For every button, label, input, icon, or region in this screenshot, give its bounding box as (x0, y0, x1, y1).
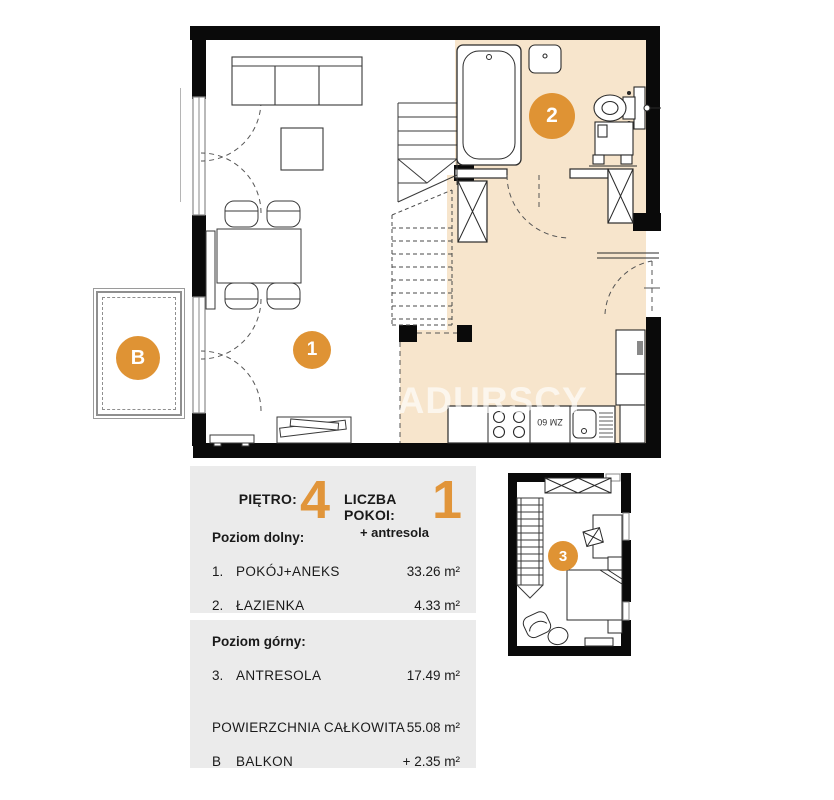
lower-level-panel: PIĘTRO: 4 LICZBA POKOI: + antresola 1 Po… (190, 466, 476, 613)
balcony-no: B (212, 754, 236, 769)
floor-indicator: PIĘTRO: 4 (208, 476, 330, 524)
mezzanine-railing-beam (545, 478, 611, 493)
room-row-2: 2. ŁAZIENKA 4.33 m² (190, 598, 476, 613)
total-area: 55.08 m² (407, 720, 460, 735)
room-number: 3. (212, 668, 236, 683)
marker-balcony: B (116, 336, 160, 380)
floor-plan-page: ZM 60 (0, 0, 834, 800)
room-name: ANTRESOLA (236, 668, 407, 683)
floor-label: PIĘTRO: (239, 491, 297, 507)
upper-level-panel: Poziom górny: 3. ANTRESOLA 17.49 m² POWI… (190, 620, 476, 768)
balcony-area: + 2.35 m² (403, 754, 460, 769)
balcony-row: B BALKON + 2.35 m² (190, 754, 476, 769)
room-area: 33.26 m² (407, 564, 460, 579)
rooms-indicator: LICZBA POKOI: + antresola 1 (344, 476, 462, 524)
bench-sill (585, 638, 613, 646)
room-row-3: 3. ANTRESOLA 17.49 m² (190, 668, 476, 683)
staircase-upper-dashed (392, 190, 452, 325)
room-row-1: 1. POKÓJ+ANEKS 33.26 m² (190, 564, 476, 579)
washbasin (529, 45, 561, 73)
rooms-label: LICZBA POKOI: (344, 491, 429, 523)
lower-section-title: Poziom dolny: (190, 530, 476, 545)
room-number: 1. (212, 564, 236, 579)
marker-room-2: 2 (529, 93, 575, 139)
tv-cabinet (277, 417, 351, 443)
coffee-table (281, 128, 323, 170)
marker-room-1: 1 (293, 331, 331, 369)
room-name: POKÓJ+ANEKS (236, 564, 407, 579)
rooms-value: 1 (432, 478, 462, 522)
dining-set (206, 201, 301, 309)
fridge (616, 330, 645, 443)
bathtub (457, 45, 521, 165)
room-name: ŁAZIENKA (236, 598, 414, 613)
panel-header: PIĘTRO: 4 LICZBA POKOI: + antresola 1 (190, 466, 476, 524)
total-label: POWIERZCHNIA CAŁKOWITA (212, 720, 407, 735)
mezzanine-stairs (517, 498, 543, 598)
total-area-row: POWIERZCHNIA CAŁKOWITA 55.08 m² (190, 720, 476, 735)
upper-section-title: Poziom górny: (190, 634, 476, 649)
room-number: 2. (212, 598, 236, 613)
floor-value: 4 (300, 478, 330, 522)
room-area: 17.49 m² (407, 668, 460, 683)
room-area: 4.33 m² (414, 598, 460, 613)
rooms-note: + antresola (360, 525, 429, 540)
marker-room-3: 3 (548, 541, 578, 571)
sofa (232, 57, 362, 105)
balcony-label: BALKON (236, 754, 403, 769)
watermark: SADURSCY (372, 380, 588, 422)
facade-line (180, 88, 181, 202)
